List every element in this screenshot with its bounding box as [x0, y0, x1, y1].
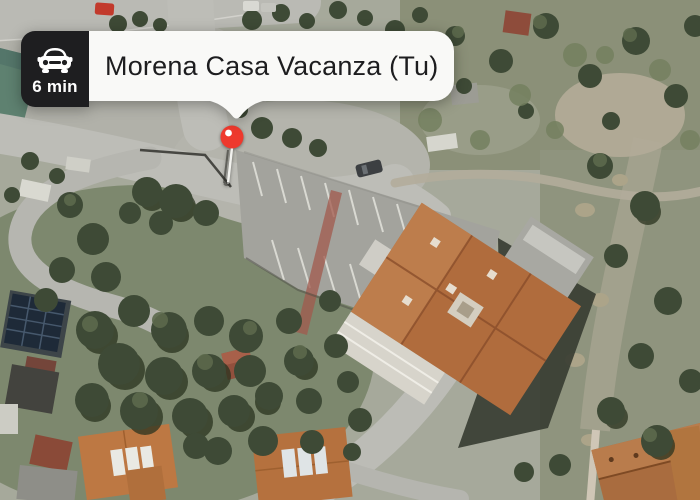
- car-icon: [35, 44, 75, 76]
- destination-pin[interactable]: [211, 119, 255, 195]
- pin-dot: [225, 130, 232, 137]
- travel-time-badge[interactable]: 6 min: [21, 31, 89, 107]
- destination-callout[interactable]: 6 min Morena Casa Vacanza (Tu): [21, 31, 454, 107]
- callout-tail: [205, 100, 268, 122]
- callout-bubble[interactable]: Morena Casa Vacanza (Tu): [89, 31, 454, 101]
- pin-head: [221, 126, 244, 149]
- maps-app-screen: 6 min Morena Casa Vacanza (Tu): [0, 0, 700, 500]
- travel-time-label: 6 min: [32, 78, 77, 95]
- destination-title: Morena Casa Vacanza (Tu): [105, 51, 438, 82]
- pin-base: [224, 182, 231, 186]
